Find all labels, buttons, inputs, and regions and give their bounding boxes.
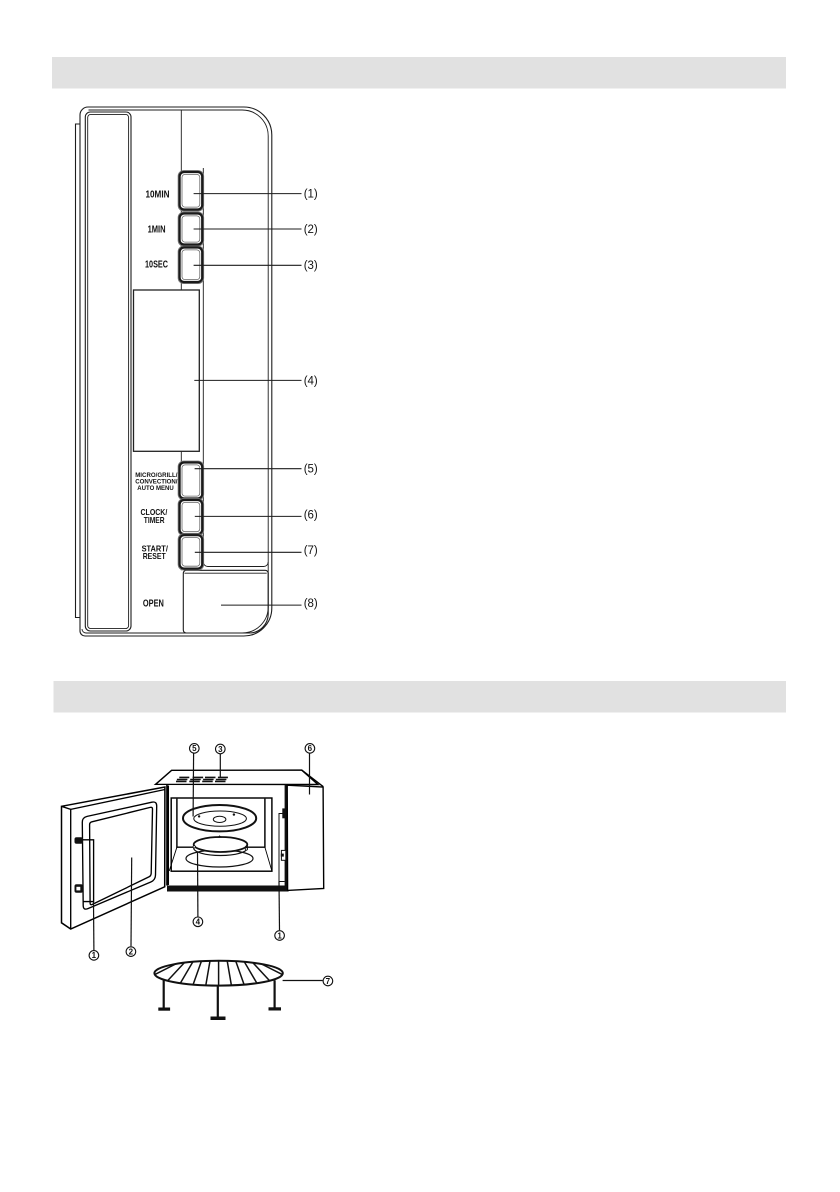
svg-text:6: 6 [308, 744, 313, 753]
svg-text:10SEC: 10SEC [145, 258, 168, 270]
svg-text:1: 1 [277, 931, 282, 940]
svg-text:1MIN: 1MIN [148, 224, 166, 236]
svg-text:10MIN: 10MIN [146, 189, 170, 201]
svg-text:AUTO MENU: AUTO MENU [137, 485, 174, 492]
svg-text:(6): (6) [304, 509, 318, 521]
svg-text:TIMER: TIMER [144, 516, 165, 525]
svg-text:(4): (4) [304, 375, 318, 387]
svg-text:RESET: RESET [143, 552, 166, 561]
svg-text:1: 1 [92, 951, 97, 960]
svg-text:(3): (3) [304, 260, 318, 272]
svg-text:(1): (1) [304, 188, 318, 200]
svg-text:(8): (8) [304, 598, 318, 610]
svg-text:OPEN: OPEN [143, 598, 164, 610]
svg-text:(7): (7) [304, 545, 318, 557]
svg-text:4: 4 [196, 918, 201, 927]
svg-text:(5): (5) [304, 464, 318, 476]
svg-text:(2): (2) [304, 224, 318, 236]
svg-text:2: 2 [129, 947, 134, 956]
svg-text:3: 3 [218, 745, 223, 754]
svg-text:7: 7 [326, 977, 331, 986]
svg-text:5: 5 [192, 744, 197, 753]
